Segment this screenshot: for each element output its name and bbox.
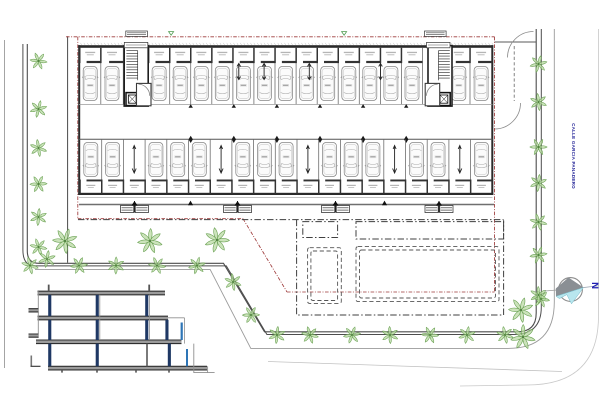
svg-text:CALLE GARCIA PANADERO: CALLE GARCIA PANADERO [571, 123, 576, 189]
svg-text:N: N [589, 282, 600, 289]
